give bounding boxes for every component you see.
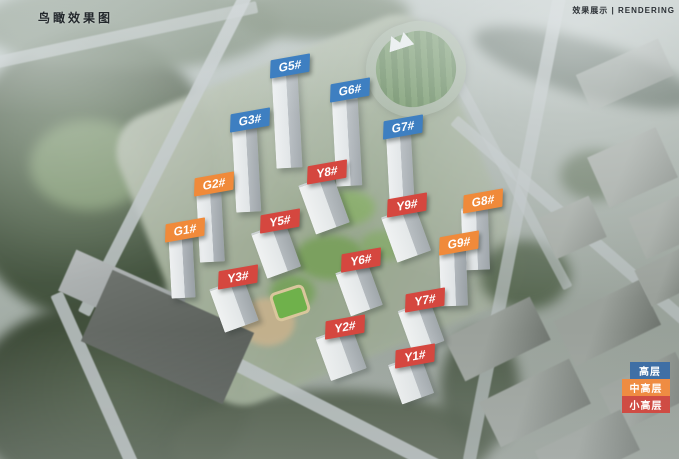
legend-label: 高层 [639, 363, 661, 378]
building-label-y1: Y1# [395, 343, 435, 368]
legend-label: 中高层 [630, 380, 663, 395]
rendering-watermark: 效果展示 | RENDERING [572, 5, 675, 16]
running-track-field [367, 21, 466, 116]
legend-label: 小高层 [630, 397, 663, 412]
page-title: 鸟瞰效果图 [38, 9, 113, 26]
legend-item-high-rise: 高层 [630, 362, 670, 379]
tower-g5 [272, 71, 303, 168]
legend: 高层 中高层 小高层 [622, 362, 670, 413]
tower-g1 [168, 235, 195, 298]
tower-g3 [232, 125, 261, 212]
legend-item-small-high-rise: 小高层 [622, 396, 670, 413]
legend-item-mid-high-rise: 中高层 [622, 379, 670, 396]
city-block [628, 196, 679, 259]
aerial-rendering: G5# G6# G3# G7# Y8# G2# G8# Y9# Y5# G1# … [0, 0, 679, 459]
